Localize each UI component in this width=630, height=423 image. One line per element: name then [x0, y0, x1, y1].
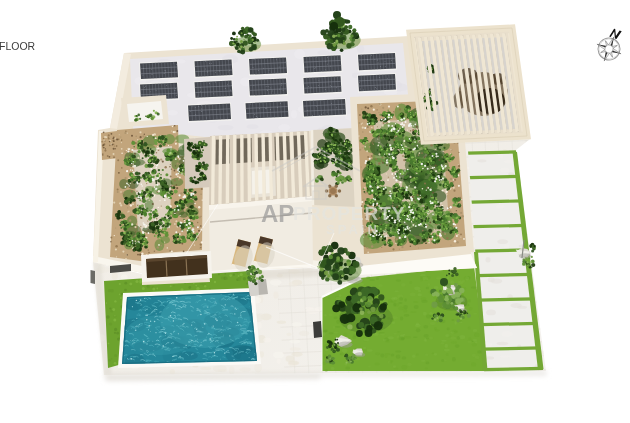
svg-text:AP: AP	[261, 200, 294, 227]
svg-text:FLOOR: FLOOR	[0, 40, 36, 52]
svg-text:PROPERTY: PROPERTY	[293, 203, 406, 224]
svg-text:SPAIN: SPAIN	[326, 222, 380, 237]
